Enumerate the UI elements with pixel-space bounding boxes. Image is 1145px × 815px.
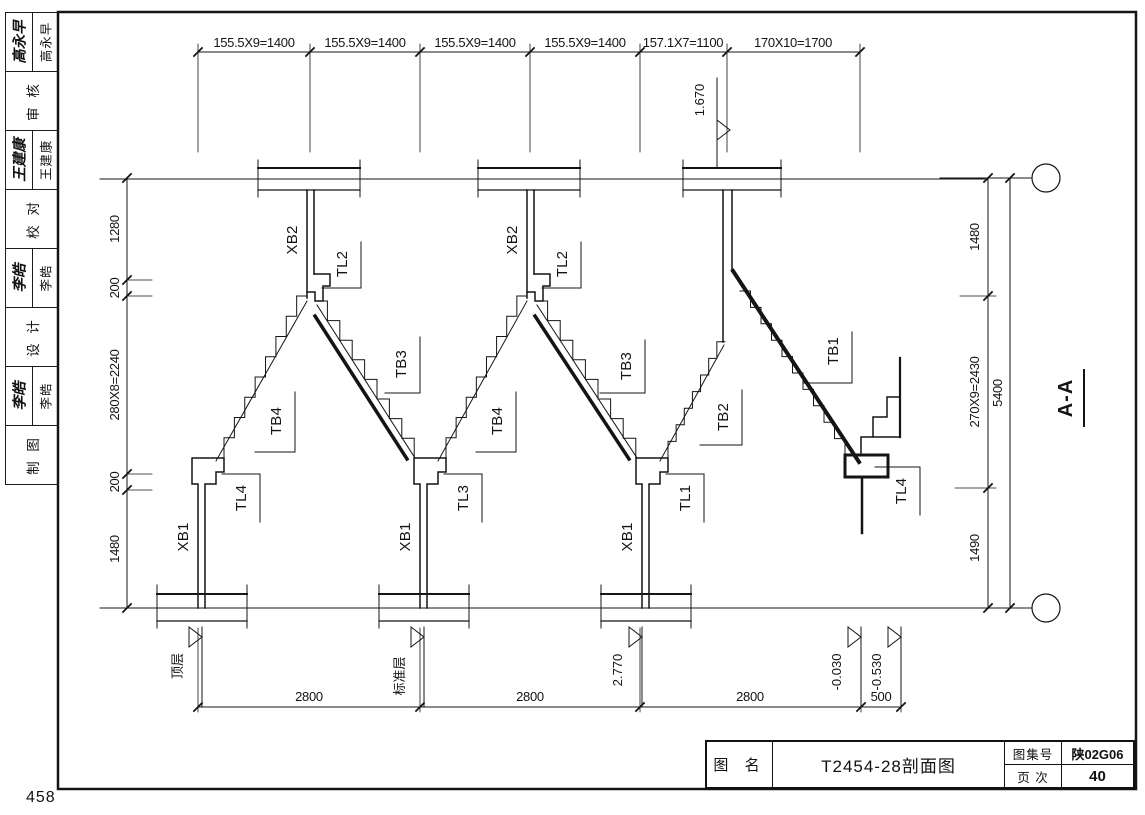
lower-wall-xb1-2 [414,458,446,608]
section-drawing: 155.5X9=1400 155.5X9=1400 155.5X9=1400 1… [0,0,1145,815]
lower-wall-xb1-3 [636,458,668,608]
label-tb4-1: TB4 [268,407,285,435]
dim-left-4: 200 [107,472,122,493]
label-tl2-1: TL2 [334,251,351,277]
section-title: A-A [1055,370,1084,426]
atlas-number-value: 陕02G06 [1062,742,1133,764]
title-block: 图 名 T2454-28剖面图 图集号 陕02G06 页 次 40 [705,740,1135,789]
elevation-flag-top-floor: 顶层 [170,627,202,706]
dim-left-3: 280X8=2240 [107,349,122,420]
stair-stub-right [861,358,900,455]
dim-left-2: 200 [107,278,122,299]
label-tl1: TL1 [677,485,694,511]
dim-top-1: 155.5X9=1400 [213,35,294,50]
label-tb3-2: TB3 [618,352,635,380]
top-floor-slab [100,160,985,197]
bottom-floor-slab [100,585,985,628]
label-tb4-2: TB4 [489,407,506,435]
label-xb2-2: XB2 [504,226,521,255]
elevation-upper-value: 1.670 [692,84,707,117]
elevation-minus030-value: -0.030 [829,654,844,691]
label-tb1: TB1 [825,337,842,365]
flight-tb4-1 [216,296,307,461]
corner-page-number: 458 [26,789,56,807]
atlas-page: 高永早 高永早 审 核 王建康 王建康 校 对 李皓 李皓 设 计 李皓 李皓 … [0,0,1145,815]
elevation-mid-value: 2.770 [610,654,625,687]
atlas-number-label: 图集号 [1005,742,1062,764]
label-xb1-1: XB1 [175,523,192,552]
flight-tb2 [660,342,725,461]
atlas-row: 图集号 陕02G06 [1005,742,1133,765]
dim-right-2: 270X9=2430 [967,356,982,427]
right-dimension-chain: 1480 270X9=2430 1490 5400 [940,164,1060,622]
dim-top-3: 155.5X9=1400 [434,35,515,50]
page-number-label: 页 次 [1005,765,1062,787]
upper-wall-xb2-1 [307,190,330,301]
standard-floor-label: 标准层 [392,656,407,695]
dim-top-4: 155.5X9=1400 [544,35,625,50]
elevation-flag-upper: 1.670 [692,78,730,168]
flight-tb3-1 [315,301,415,459]
page-row: 页 次 40 [1005,765,1133,787]
upper-wall-xb2-2 [527,190,550,301]
label-xb1-2: XB1 [397,523,414,552]
elevation-flag-minus030: -0.030 [829,627,861,706]
page-number-value: 40 [1062,765,1133,787]
left-dimension-chain: 1280 200 280X8=2240 200 1480 [107,174,152,612]
dim-top-6: 170X10=1700 [754,35,832,50]
atlas-page-block: 图集号 陕02G06 页 次 40 [1005,742,1133,787]
top-floor-label: 顶层 [170,653,185,679]
bottom-dimension-chain: 2800 2800 2800 500 [194,628,905,712]
elevation-flag-standard-floor: 标准层 [392,627,424,706]
elevation-minus530-value: -0.530 [869,654,884,691]
dim-bottom-3: 2800 [736,689,764,704]
upper-wall-bay3 [723,190,732,342]
drawing-name: T2454-28剖面图 [773,742,1005,787]
drawing-name-label: 图 名 [707,742,773,787]
flight-tb4-2 [438,296,527,461]
elevation-flag-2770: 2.770 [610,627,642,706]
axis-bubble-top [1032,164,1060,192]
dim-top-5: 157.1X7=1100 [643,35,723,50]
flight-tb1 [733,271,859,462]
axis-bubble-bottom [1032,594,1060,622]
dim-right-1: 1480 [967,223,982,251]
dim-bottom-1: 2800 [295,689,323,704]
lower-wall-xb1-1 [192,458,224,608]
label-tb2: TB2 [715,403,732,431]
dim-left-5: 1480 [107,535,122,563]
label-tl2-2: TL2 [554,251,571,277]
label-xb1-3: XB1 [619,523,636,552]
top-dimension-chain: 155.5X9=1400 155.5X9=1400 155.5X9=1400 1… [194,35,864,152]
dim-right-total: 5400 [990,379,1005,407]
dim-right-3: 1490 [967,534,982,562]
label-tl4-2: TL4 [893,478,910,504]
label-tl3: TL3 [455,485,472,511]
label-tl4-1: TL4 [233,485,250,511]
dim-left-1: 1280 [107,215,122,243]
member-leaders [222,242,920,522]
section-title-text: A-A [1055,379,1077,418]
dim-bottom-2: 2800 [516,689,544,704]
dim-top-2: 155.5X9=1400 [324,35,405,50]
label-xb2-1: XB2 [284,226,301,255]
label-tb3-1: TB3 [393,350,410,378]
